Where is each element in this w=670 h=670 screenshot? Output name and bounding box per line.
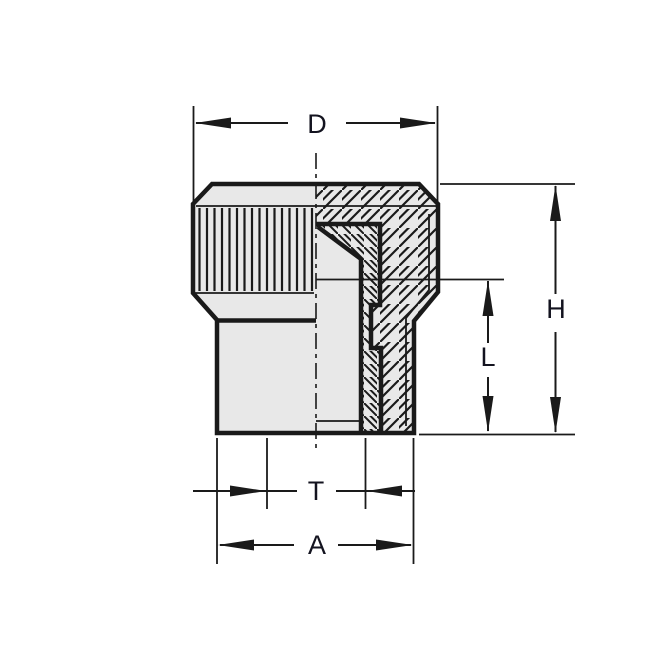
a-arrowhead-right bbox=[376, 540, 413, 551]
l-arrowhead-top bbox=[483, 281, 494, 317]
knob-body bbox=[193, 153, 438, 452]
d-arrowhead-left bbox=[195, 118, 231, 129]
dim-label-h: H bbox=[546, 294, 566, 324]
dim-label-a: A bbox=[308, 530, 326, 560]
dimension-t: T bbox=[193, 438, 415, 509]
dim-label-d: D bbox=[307, 109, 327, 139]
l-arrowhead-bottom bbox=[483, 396, 494, 432]
d-arrowhead-right bbox=[400, 118, 436, 129]
h-arrowhead-top bbox=[550, 185, 561, 221]
dimension-h: H bbox=[419, 184, 575, 435]
t-arrowhead-right bbox=[367, 486, 403, 497]
a-arrowhead-left bbox=[218, 540, 254, 551]
technical-drawing-page: D H L T bbox=[0, 0, 670, 670]
dim-label-l: L bbox=[480, 342, 495, 372]
dim-label-t: T bbox=[308, 476, 325, 506]
knob-technical-drawing: D H L T bbox=[0, 0, 670, 670]
t-arrowhead-left bbox=[230, 486, 266, 497]
h-arrowhead-bottom bbox=[550, 397, 561, 433]
